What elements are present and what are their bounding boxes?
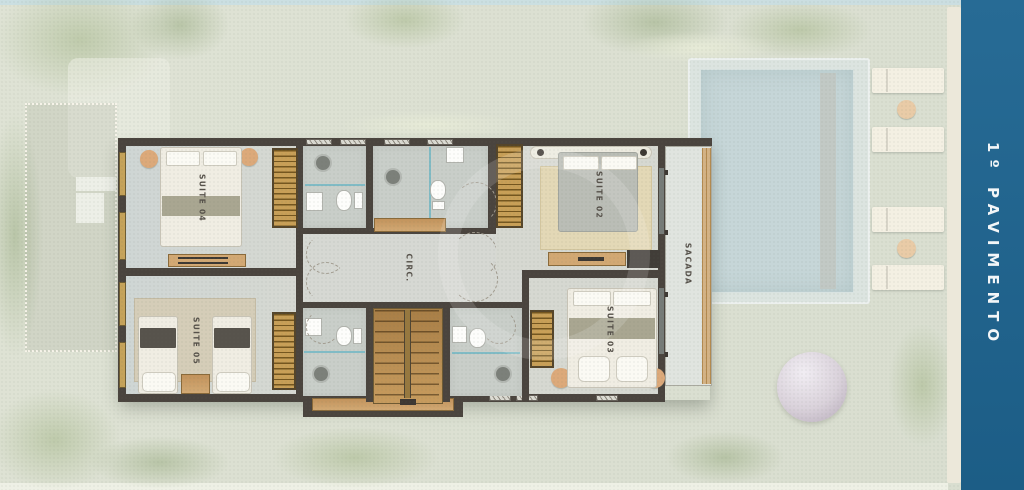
- pillow: [166, 151, 200, 166]
- bed-blanket: [140, 328, 176, 348]
- bedside-table: [140, 150, 158, 168]
- sink-fixture: [446, 147, 464, 163]
- toilet-tank: [354, 192, 363, 209]
- side-table: [897, 239, 916, 258]
- bedside-table: [240, 148, 258, 166]
- dresser-handle: [178, 257, 228, 259]
- window-segment: [119, 282, 126, 326]
- shower-fixture: [496, 367, 510, 381]
- suite-04-dresser: [168, 254, 246, 267]
- pillow: [216, 372, 250, 392]
- toilet-tank: [432, 201, 445, 210]
- dresser-handle: [178, 262, 228, 264]
- stair-railing: [404, 310, 411, 398]
- sunbed-backrest: [886, 266, 888, 289]
- sink-fixture: [306, 192, 323, 211]
- suite-03-label: SUITE 03: [606, 306, 615, 354]
- bottom-edge-strip: [0, 483, 948, 490]
- wall-segment: [118, 138, 712, 146]
- toilet-tank: [353, 328, 362, 344]
- top-edge-strip: [0, 0, 962, 5]
- stair-mark: [400, 399, 416, 405]
- wall-segment: [118, 268, 304, 276]
- suite-04-wardrobe: [272, 148, 298, 228]
- balcony-glass-door: [659, 288, 664, 354]
- side-table: [897, 100, 916, 119]
- wall-segment: [366, 146, 373, 230]
- sunbed-backrest: [886, 208, 888, 231]
- shower-glass: [304, 351, 365, 353]
- window-segment: [119, 212, 126, 260]
- sunbed: [872, 207, 944, 232]
- hall-wood-threshold: [374, 218, 446, 232]
- shower-fixture: [316, 156, 330, 170]
- balcony-glass-door: [659, 168, 664, 234]
- tree-foliage: [60, 425, 260, 490]
- balcony-label: SACADA: [684, 243, 693, 285]
- balcony-wood-edge: [702, 148, 711, 384]
- suite-05-label: SUITE 05: [192, 317, 201, 365]
- suite-02-label: SUITE 02: [595, 171, 604, 219]
- window-segment: [119, 152, 126, 196]
- panel-divider-strip: [947, 7, 961, 483]
- door-arc: [306, 310, 340, 344]
- window-segment: [340, 139, 366, 145]
- wall-segment: [366, 308, 373, 402]
- stair-treads: [375, 310, 404, 396]
- floor-title-panel: 1º PAVIMENTO: [961, 0, 1024, 490]
- walkway: [76, 177, 116, 191]
- garden-bed-outline: [25, 103, 117, 352]
- walkway: [76, 193, 104, 223]
- tree-foliage: [240, 415, 470, 490]
- shower-fixture: [314, 367, 328, 381]
- tree-foliage: [640, 420, 810, 490]
- sink-fixture: [452, 326, 467, 343]
- wall-segment: [443, 308, 450, 402]
- door-arc: [306, 262, 346, 302]
- pillow: [142, 372, 176, 392]
- floor-plan-scene: SUITE 04 SUITE 05 SUITE 02 SUITE 03 CIRC…: [0, 0, 1024, 490]
- foot-cushion: [616, 356, 648, 382]
- pillow: [203, 151, 237, 166]
- sunbed-backrest: [886, 69, 888, 92]
- sunbed: [872, 127, 944, 152]
- tree-foliage: [320, 0, 490, 60]
- sunbed-backrest: [886, 128, 888, 151]
- pool-ledge: [820, 73, 836, 289]
- window-segment: [306, 139, 332, 145]
- shower-fixture: [386, 170, 400, 184]
- stair-treads: [410, 310, 439, 396]
- window-segment: [596, 395, 618, 401]
- ornamental-sphere: [777, 352, 847, 422]
- wood-mat: [181, 374, 210, 394]
- window-segment: [427, 139, 453, 145]
- bedside-lamp: [640, 149, 647, 156]
- window-segment: [119, 342, 126, 388]
- suite-05-wardrobe: [272, 312, 296, 390]
- sunbed: [872, 265, 944, 290]
- sunbed: [872, 68, 944, 93]
- circulation-label: CIRC.: [405, 254, 414, 283]
- suite-04-label: SUITE 04: [198, 174, 207, 222]
- bed-blanket: [214, 328, 250, 348]
- floor-title: 1º PAVIMENTO: [984, 142, 1002, 348]
- toilet-fixture: [430, 180, 446, 200]
- toilet-fixture: [336, 190, 352, 211]
- shower-glass: [305, 184, 365, 186]
- bathroom-suite04: [303, 146, 366, 228]
- window-segment: [384, 139, 410, 145]
- logo-watermark: [438, 148, 650, 360]
- foot-cushion: [578, 356, 610, 382]
